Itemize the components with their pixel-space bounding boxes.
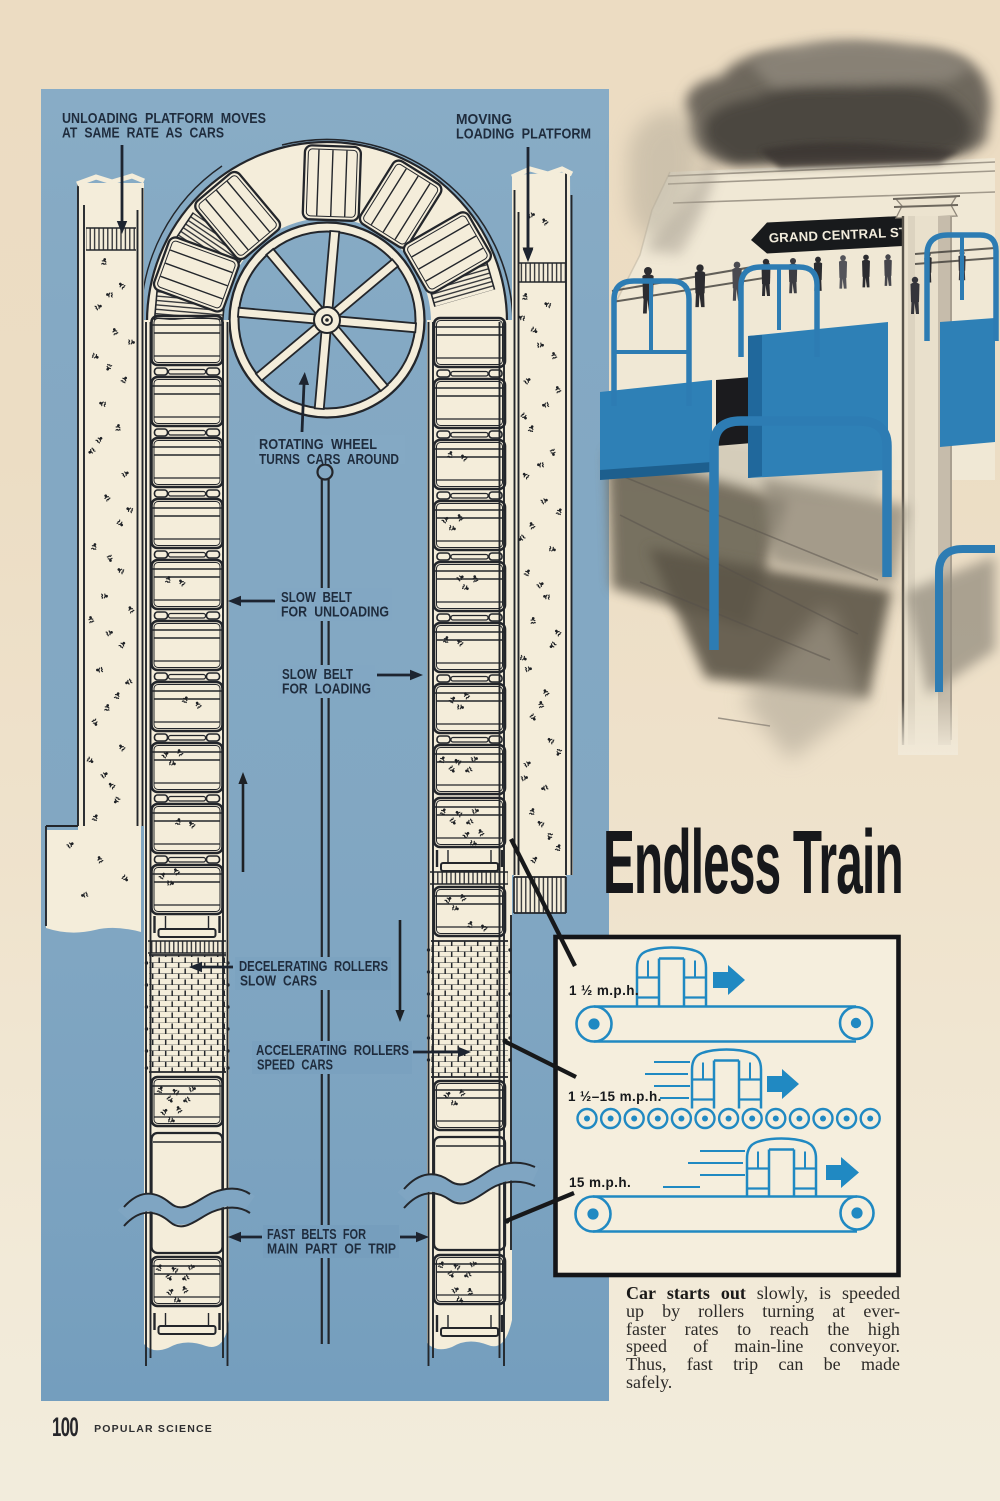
svg-text:1 ½–15 m.p.h.: 1 ½–15 m.p.h. [568, 1089, 662, 1104]
svg-text:TURNS CARS AROUND: TURNS CARS AROUND [259, 451, 399, 468]
svg-text:1 ½ m.p.h.: 1 ½ m.p.h. [569, 983, 639, 998]
svg-text:FOR LOADING: FOR LOADING [282, 681, 371, 698]
svg-text:AT SAME RATE AS CARS: AT SAME RATE AS CARS [62, 125, 224, 142]
svg-text:FOR UNLOADING: FOR UNLOADING [281, 604, 389, 621]
svg-text:MAIN PART OF TRIP: MAIN PART OF TRIP [267, 1241, 396, 1258]
svg-text:SPEED CARS: SPEED CARS [257, 1057, 333, 1074]
svg-text:SLOW CARS: SLOW CARS [240, 973, 317, 990]
svg-text:15 m.p.h.: 15 m.p.h. [569, 1175, 631, 1190]
svg-text:LOADING PLATFORM: LOADING PLATFORM [456, 126, 591, 143]
